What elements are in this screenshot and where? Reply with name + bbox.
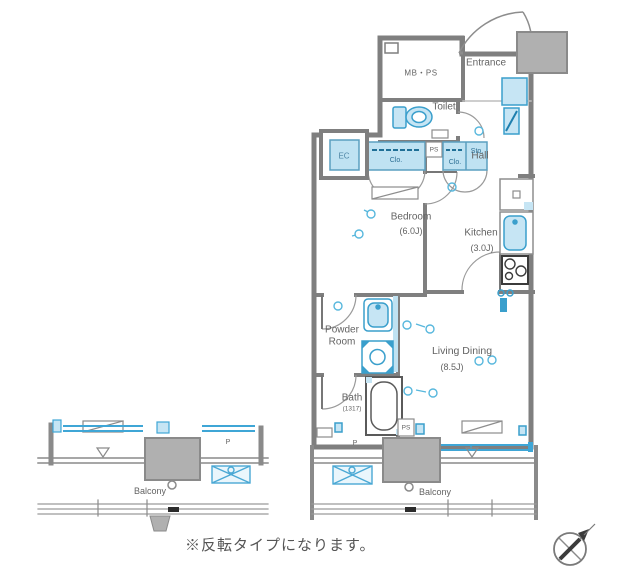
- p-mark-right: P: [353, 440, 358, 448]
- ps-lower-label: PS: [402, 424, 411, 431]
- room-label-mbps: MB・PS: [404, 68, 437, 77]
- room-label-entrance: Entrance: [466, 57, 506, 69]
- closet-a-label: Clo.: [390, 157, 402, 165]
- escape-hatch-right-icon: [333, 466, 372, 484]
- p-mark-left: P: [226, 439, 231, 447]
- mirror-type-note: ※反転タイプになります。: [185, 534, 376, 555]
- washbasin-icon: [364, 299, 392, 331]
- room-label-powder-room: Powder Room: [325, 325, 359, 348]
- compass-icon: [554, 524, 595, 565]
- bathtub-icon: [366, 377, 402, 435]
- outer-walls: [314, 38, 531, 447]
- washing-machine-icon: [362, 341, 393, 373]
- ac-unit-icon: [462, 421, 502, 433]
- stove-icon: [502, 256, 528, 284]
- bath-size-label: (1317): [343, 405, 362, 412]
- balcony-right-label: Balcony: [419, 487, 451, 497]
- room-label-kitchen: Kitchen: [464, 227, 497, 239]
- balcony-left-label: Balcony: [134, 486, 166, 496]
- room-label-toilet: Toilet: [432, 101, 455, 113]
- kitchen-size-label: (3.0J): [470, 243, 493, 253]
- refrigerator-icon: [500, 179, 533, 210]
- room-label-living-dining: Living Dining: [432, 345, 492, 357]
- room-label-bath: Bath: [342, 392, 363, 404]
- floor-plan-drawing: [0, 0, 640, 569]
- living-size-label: (8.5J): [440, 362, 463, 372]
- escape-hatch-left-icon: [212, 466, 250, 483]
- kitchen-sink-icon: [500, 212, 533, 254]
- storage-label: Sto.: [471, 148, 483, 156]
- structure-column: [517, 32, 567, 73]
- bedroom-size-label: (6.0J): [399, 226, 422, 236]
- toilet-icon: [393, 107, 432, 128]
- shoe-box-icon: [502, 78, 527, 105]
- ps-upper-label: PS: [430, 146, 439, 153]
- room-label-ec: EC: [338, 151, 349, 160]
- room-label-bedroom: Bedroom: [391, 211, 432, 223]
- floor-plan-canvas: MB・PS Entrance Toilet Hall EC Clo. PS Cl…: [0, 0, 640, 569]
- closet-b-label: Clo.: [449, 159, 461, 167]
